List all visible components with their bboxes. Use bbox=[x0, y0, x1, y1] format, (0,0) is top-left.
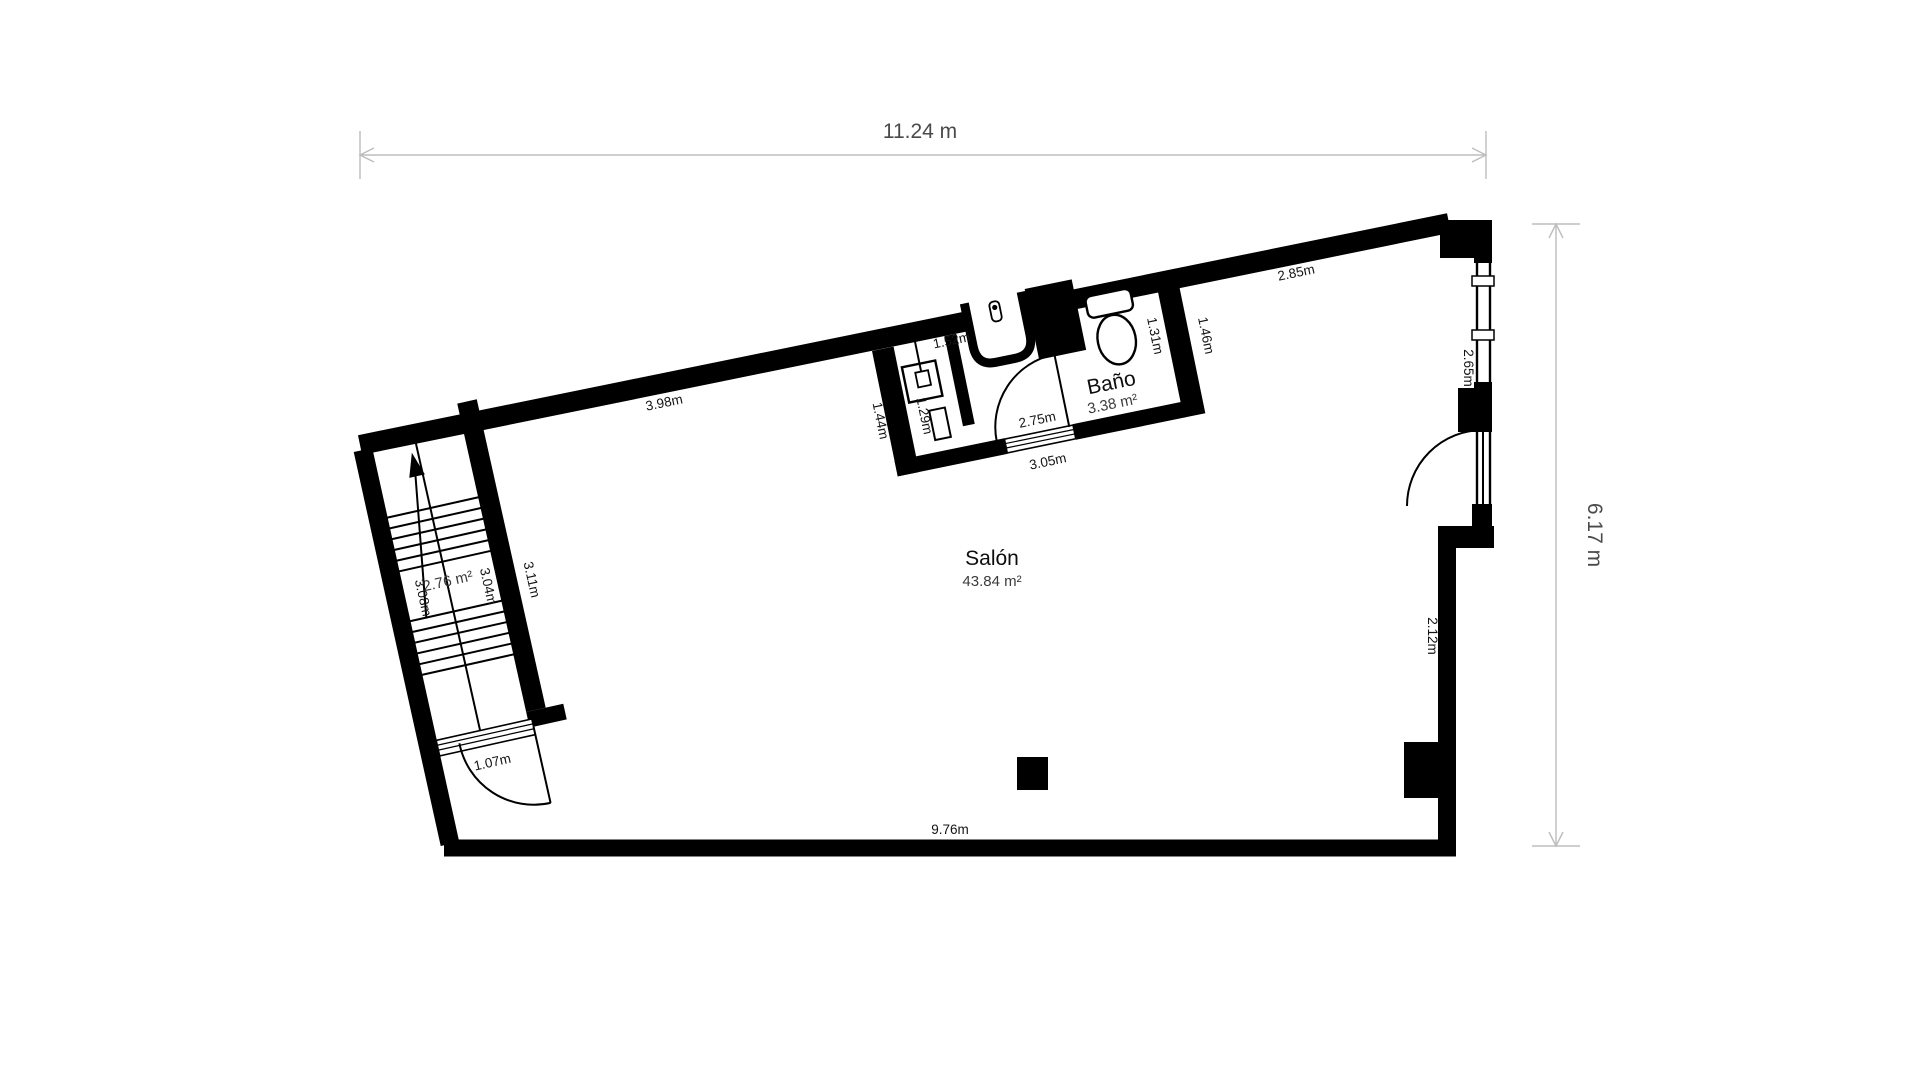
stair-door-threshold bbox=[436, 719, 535, 756]
bath-door-leaf bbox=[1054, 354, 1069, 426]
salon-column bbox=[1017, 757, 1048, 790]
right-dimension: 6.17 m bbox=[1532, 224, 1606, 846]
salon: Salón 43.84 m² 9.76m bbox=[931, 547, 1048, 837]
bath-door-threshold bbox=[1004, 425, 1075, 453]
right-door-arc bbox=[1407, 430, 1483, 506]
right-wall-assembly: 2.65m 2.12m bbox=[1404, 255, 1494, 846]
bathroom: 1.52m Baño 3.38 m² 2.75m 3.05m 1.44m 1.2… bbox=[853, 254, 1233, 502]
window-mullion-1 bbox=[1472, 276, 1494, 286]
stairs-outer-label: 3.11m bbox=[521, 560, 544, 599]
right-pillar-lower bbox=[1404, 742, 1456, 798]
outer-walls bbox=[360, 220, 1492, 848]
salon-room-name: Salón bbox=[965, 547, 1019, 570]
total-height-label: 6.17 m bbox=[1583, 503, 1606, 567]
floorplan-svg: 11.24 m 6.17 m 2.65m 2.12m bbox=[0, 0, 1920, 1080]
bath-inner-right-label: 1.31m bbox=[1144, 316, 1166, 356]
sink-tap-head-icon bbox=[915, 370, 931, 387]
right-wall-jog bbox=[1438, 526, 1494, 548]
bath-outer-right-label: 1.46m bbox=[1195, 316, 1217, 356]
left-wall bbox=[363, 450, 450, 844]
bath-door-label: 2.75m bbox=[1017, 409, 1057, 431]
stairs-door-label: 1.07m bbox=[472, 751, 512, 774]
window-mullion-2 bbox=[1472, 330, 1494, 340]
right-pillar-upper bbox=[1458, 388, 1492, 432]
floorplan-canvas: 11.24 m 6.17 m 2.65m 2.12m bbox=[0, 0, 1920, 1080]
bottom-wall-label: 9.76m bbox=[931, 822, 969, 837]
right-wall-lower-label: 2.12m bbox=[1425, 617, 1440, 655]
stair-arrow-icon bbox=[404, 451, 425, 478]
stair-door-leaf bbox=[534, 727, 551, 803]
right-window-label: 2.65m bbox=[1461, 349, 1476, 387]
top-dimension: 11.24 m bbox=[360, 120, 1486, 179]
salon-room-area: 43.84 m² bbox=[962, 573, 1021, 590]
total-width-label: 11.24 m bbox=[883, 120, 957, 143]
corner-chimney-block bbox=[1440, 220, 1492, 258]
bath-bottom-label: 3.05m bbox=[1028, 450, 1068, 472]
bath-inner-left-label: 1.29m bbox=[913, 396, 935, 436]
toilet-bowl-fixture bbox=[1093, 311, 1140, 368]
right-wall-bottom-segment bbox=[1438, 798, 1456, 846]
